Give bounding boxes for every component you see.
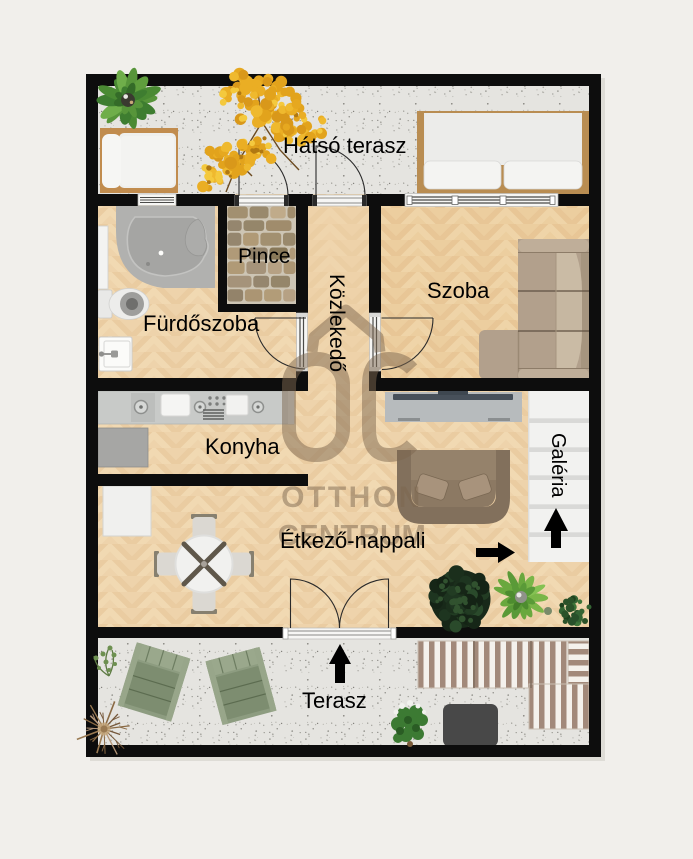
svg-text:Konyha: Konyha — [205, 434, 280, 459]
svg-text:Terasz: Terasz — [302, 688, 367, 713]
svg-text:Pince: Pince — [238, 245, 291, 268]
svg-text:Fürdőszoba: Fürdőszoba — [143, 311, 260, 336]
svg-text:OTTHON: OTTHON — [281, 481, 423, 514]
svg-text:Közlekedő: Közlekedő — [325, 274, 348, 372]
svg-text:Galéria: Galéria — [547, 433, 569, 498]
svg-text:Szoba: Szoba — [427, 278, 490, 303]
svg-text:Hátsó terasz: Hátsó terasz — [283, 133, 407, 158]
svg-text:Étkező-nappali: Étkező-nappali — [280, 528, 426, 553]
